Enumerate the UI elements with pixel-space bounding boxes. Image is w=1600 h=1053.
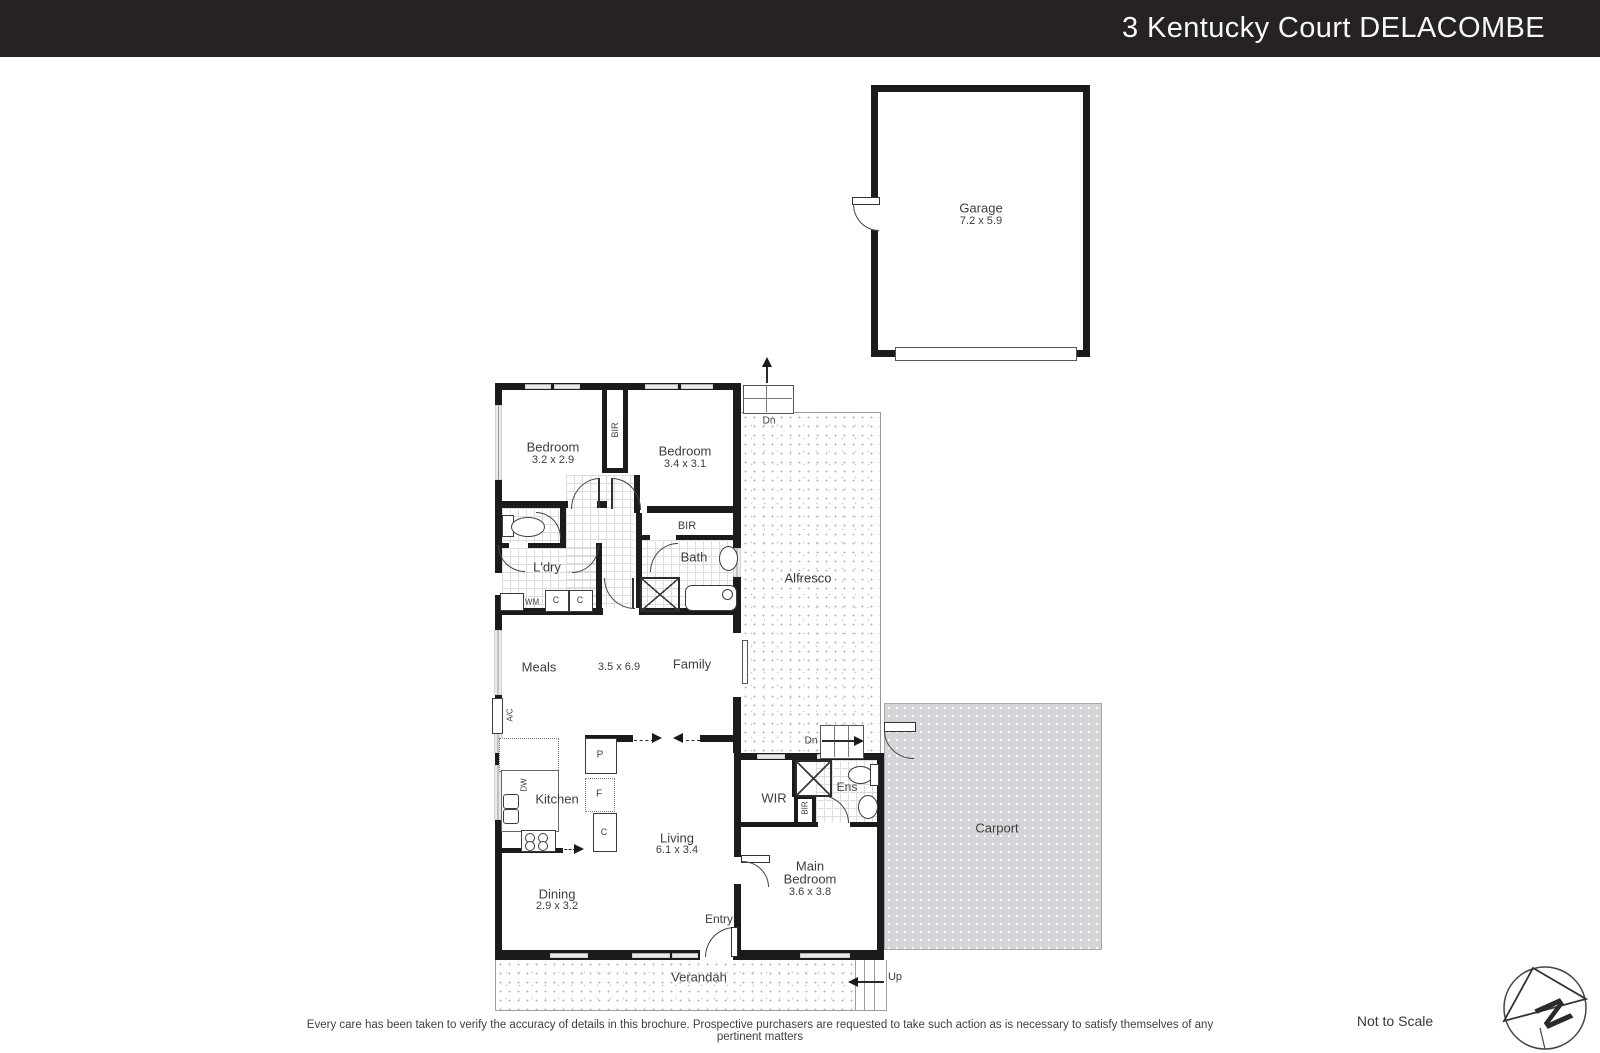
cupboard-label: C	[601, 827, 608, 837]
bir-wall	[812, 795, 816, 822]
kitchen-sink	[503, 809, 519, 824]
family-label: Family	[673, 657, 711, 672]
kitchen-sink	[503, 794, 519, 809]
not-to-scale-label: Not to Scale	[1330, 1013, 1460, 1029]
bir-label: BIR	[678, 520, 696, 532]
bath-wall-top	[642, 535, 650, 540]
ac-label: A/C	[506, 708, 515, 721]
ensuite-toilet-cistern	[870, 764, 879, 786]
main-bedroom-wall-top	[850, 822, 877, 827]
bir-wall	[794, 795, 798, 822]
slider-dash-line	[686, 740, 700, 741]
garage-wall-left-upper	[871, 85, 878, 202]
cupboard-label: C	[553, 595, 560, 605]
verandah-up-arrow-icon	[848, 977, 858, 987]
window	[800, 953, 850, 958]
ac-unit	[492, 698, 503, 734]
window	[645, 384, 678, 389]
main-bedroom-label-line2: Bedroom	[784, 872, 837, 887]
compass-north-icon: N	[1495, 958, 1595, 1053]
bedroom1-label: Bedroom	[527, 440, 580, 455]
living-dims: 6.1 x 3.4	[656, 844, 698, 856]
window	[672, 953, 698, 958]
laundry-door-opening	[495, 573, 502, 595]
laundry-label: L'dry	[533, 560, 561, 575]
bedroom2-wall-bottom	[647, 506, 733, 513]
rear-steps-line	[743, 398, 792, 399]
window	[757, 754, 785, 759]
ensuite-basin	[858, 795, 878, 819]
bir-wall	[602, 468, 628, 473]
ensuite-label: Ens	[837, 780, 858, 794]
kitchen-bench-overhead	[499, 738, 559, 772]
alfresco-label: Alfresco	[785, 571, 832, 586]
stairs-up-arrow-icon	[762, 357, 772, 367]
slider-left-arrow-icon	[673, 733, 683, 743]
window	[554, 384, 580, 389]
stove-burner	[525, 841, 535, 851]
wc-wall-bottom	[528, 543, 566, 548]
stairs-down-arrow-line	[822, 740, 856, 742]
page-title: 3 Kentucky Court DELACOMBE	[1122, 0, 1545, 57]
bedroom1-wall-bottom	[495, 501, 568, 508]
cupboard-label: C	[577, 595, 584, 605]
sliding-door-opening	[733, 633, 741, 697]
verandah-step-line	[864, 960, 865, 1010]
garage-roller-door	[895, 347, 1077, 361]
kitchen-opening-arrow-icon	[574, 844, 584, 854]
kitchen-label: Kitchen	[535, 792, 578, 807]
window	[681, 384, 713, 389]
washing-machine-label: WM	[525, 598, 539, 607]
bir-label: BIR	[801, 801, 810, 814]
bedroom2-dims: 3.4 x 3.1	[664, 458, 706, 470]
window	[550, 953, 588, 958]
bedroom2-label: Bedroom	[659, 444, 712, 459]
wir-label: WIR	[761, 791, 786, 806]
main-bedroom-door-arc	[742, 861, 769, 887]
meals-family-dims: 3.5 x 6.9	[598, 661, 640, 673]
garage-label: Garage	[959, 201, 1002, 216]
stairs-up-arrow-line	[766, 366, 768, 383]
verandah-steps	[855, 960, 887, 1011]
main-bedroom-wall-top	[741, 822, 818, 827]
carport-label: Carport	[975, 821, 1018, 836]
bedroom1-door-leaf	[598, 478, 600, 508]
toilet-bowl	[511, 517, 545, 537]
slider-right-arrow-icon	[652, 733, 662, 743]
hall-meals-door-leaf	[632, 578, 634, 608]
bathtub-drain	[722, 589, 733, 600]
verandah-up-label: Up	[888, 971, 902, 983]
verandah-up-arrow-line	[856, 981, 884, 983]
window	[495, 405, 502, 480]
hall-wall-left	[560, 501, 566, 548]
sliding-door-panel	[742, 640, 748, 684]
bath-wall-top	[676, 535, 733, 540]
stairs-down-arrow-icon	[854, 736, 864, 746]
bath-basin	[719, 546, 738, 571]
dishwasher-label: DW	[520, 778, 529, 791]
disclaimer-text: Every care has been taken to verify the …	[285, 1019, 1235, 1043]
stairs-down-label: Dn	[763, 416, 776, 427]
ensuite-shower	[795, 760, 832, 797]
entry-label: Entry	[705, 912, 733, 926]
washing-machine	[500, 593, 524, 611]
window	[525, 384, 551, 389]
garage-door-arc	[853, 204, 879, 231]
pantry-label: P	[597, 750, 604, 761]
garage-wall-right	[1083, 85, 1090, 357]
stairs-down-label: Dn	[805, 736, 818, 747]
garage-wall-top	[871, 85, 1090, 92]
verandah-label: Verandah	[671, 970, 727, 985]
bedroom1-dims: 3.2 x 2.9	[532, 454, 574, 466]
bir-label: BIR	[610, 422, 620, 437]
family-wall-bottom	[700, 735, 733, 742]
meals-label: Meals	[522, 660, 557, 675]
window	[494, 630, 502, 695]
main-bedroom-dims: 3.6 x 3.8	[789, 886, 831, 898]
garage-wall-left-lower	[871, 230, 878, 357]
svg-text:N: N	[1527, 989, 1580, 1039]
rear-steps	[743, 385, 794, 414]
slider-dash-line	[634, 740, 654, 741]
garage-dims: 7.2 x 5.9	[960, 215, 1002, 227]
stove-burner	[538, 841, 548, 851]
shower	[640, 577, 680, 612]
bir-wall	[602, 390, 607, 473]
bedroom2-door-leaf	[611, 478, 613, 509]
bir-wall	[623, 390, 628, 473]
floorplan-page: 3 Kentucky Court DELACOMBE Garage 7.2 x …	[0, 0, 1600, 1053]
verandah-step-line	[874, 960, 875, 1010]
fridge-label: F	[596, 789, 602, 800]
dining-dims: 2.9 x 3.2	[536, 900, 578, 912]
entry-door-leaf	[731, 927, 738, 957]
verandah-area	[495, 960, 887, 1011]
bath-label: Bath	[681, 550, 708, 565]
window	[632, 953, 670, 958]
